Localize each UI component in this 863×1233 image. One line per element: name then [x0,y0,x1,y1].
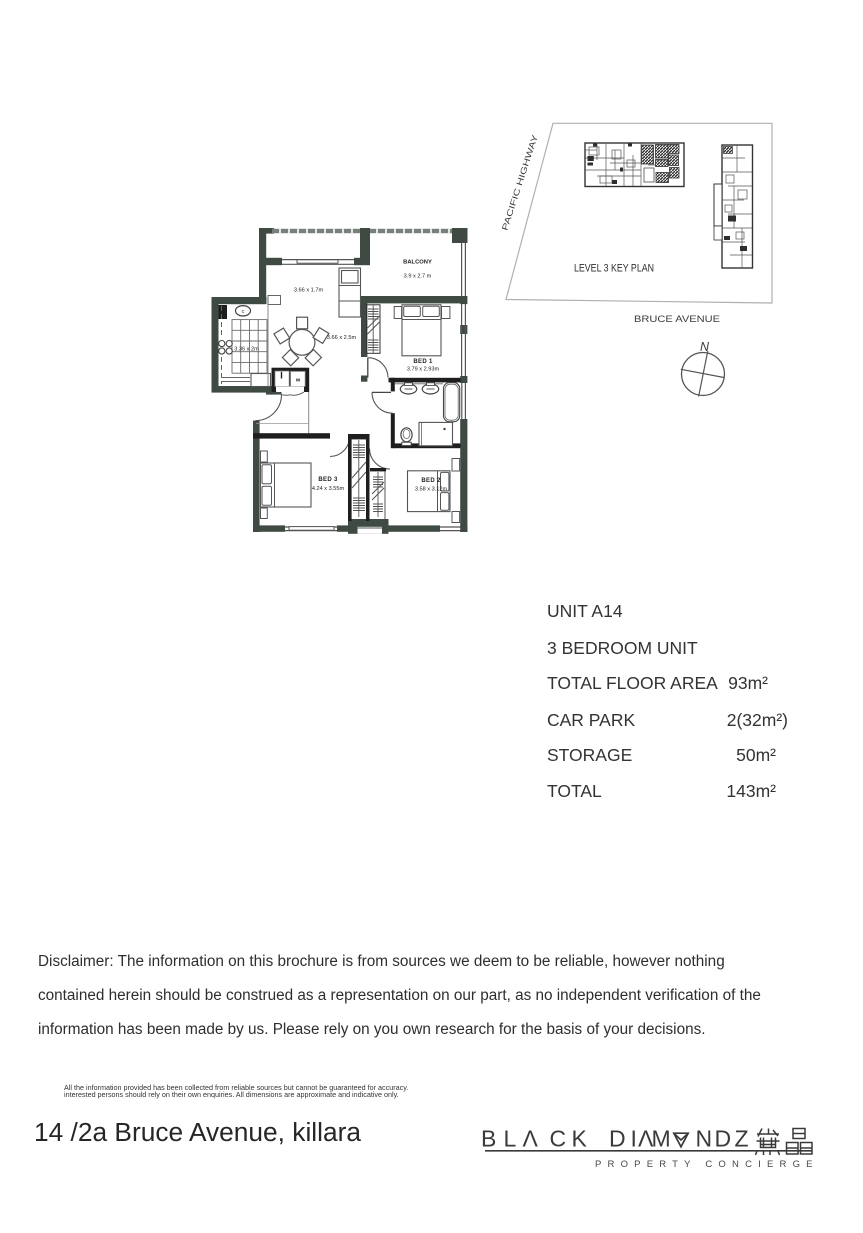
svg-text:3.66 x 2.5m: 3.66 x 2.5m [327,335,357,341]
svg-text:c: c [242,309,245,315]
svg-text:BED 1: BED 1 [413,359,433,365]
svg-text:Λ: Λ [523,1126,539,1152]
svg-text:I: I [631,1126,637,1152]
svg-text:BED 3: BED 3 [318,477,338,483]
svg-text:w: w [295,378,301,384]
svg-text:PACIFIC HIGHWAY: PACIFIC HIGHWAY [500,133,540,232]
svg-text:BRUCE AVENUE: BRUCE AVENUE [634,314,720,324]
svg-text:3.79 x 2.93m: 3.79 x 2.93m [407,367,440,373]
svg-text:BED 2: BED 2 [421,478,441,484]
svg-text:BALCONY: BALCONY [403,260,432,266]
svg-text:M: M [652,1126,671,1152]
svg-text:3.66 x 1.7m: 3.66 x 1.7m [294,288,324,294]
svg-text:3.36 x 2m: 3.36 x 2m [234,347,259,353]
svg-text:4.24 x 3.55m: 4.24 x 3.55m [312,486,345,492]
svg-text:Z: Z [735,1126,749,1152]
svg-text:D: D [609,1126,626,1152]
svg-text:3.9 x 2.7 m: 3.9 x 2.7 m [404,274,432,280]
svg-text:L: L [504,1126,517,1152]
svg-text:3.58 x 3.12m: 3.58 x 3.12m [415,487,448,493]
svg-text:K: K [572,1126,588,1152]
svg-text:B: B [481,1126,496,1152]
svg-text:D: D [715,1126,732,1152]
svg-text:LEVEL 3 KEY PLAN: LEVEL 3 KEY PLAN [574,263,654,275]
svg-text:N: N [696,1126,713,1152]
svg-text:C: C [550,1126,567,1152]
svg-text:N: N [700,340,710,354]
